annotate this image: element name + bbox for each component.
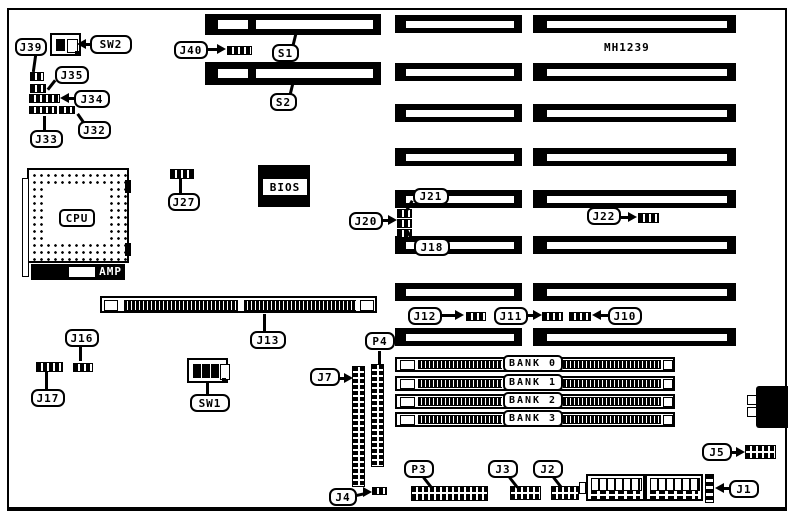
callout-tail [79, 347, 82, 361]
cache-slot-j13 [100, 296, 377, 313]
amp-brand-text: AMP [99, 265, 122, 278]
callout-j7: J7 [310, 368, 340, 386]
expansion-slot [395, 148, 522, 166]
callout-arrowhead [628, 212, 637, 222]
cpu-amp-bar: AMP [31, 264, 125, 280]
expansion-slot [395, 104, 522, 122]
header-p4 [371, 364, 384, 467]
callout-j3: J3 [488, 460, 518, 478]
callout-j2: J2 [533, 460, 563, 478]
simm-contacts [563, 415, 661, 424]
header-j2 [551, 486, 579, 500]
keyboard-connector-tab [747, 407, 757, 417]
amp-bar-window [69, 267, 95, 277]
callout-j21: J21 [413, 188, 449, 205]
callout-j17: J17 [31, 389, 65, 407]
keyboard-connector-tab [747, 395, 757, 405]
bios-chip: BIOS [258, 165, 310, 207]
jumper-j16 [73, 363, 93, 372]
slot-s1-key [218, 20, 248, 29]
slot-latch [360, 300, 374, 311]
callout-arrowhead [77, 39, 86, 49]
simm-contacts [563, 397, 661, 406]
slot-s2 [205, 62, 381, 85]
simm-latch [663, 397, 673, 407]
header-j5 [745, 445, 776, 459]
callout-arrowhead [592, 310, 601, 320]
expansion-slot [395, 63, 522, 81]
slot-s1-stripe [256, 20, 373, 29]
motherboard-diagram: MH1239 CPU AMP BIOS [0, 0, 791, 521]
header-j1 [705, 474, 714, 503]
callout-sw2: SW2 [90, 35, 132, 54]
callout-tail [263, 314, 266, 332]
simm-latch [400, 397, 415, 407]
callout-j22: J22 [587, 207, 621, 225]
callout-p4: P4 [365, 332, 395, 350]
power-pins [591, 478, 642, 491]
slot-latch [104, 300, 118, 311]
jumper-j21 [397, 209, 412, 218]
callout-j40: J40 [174, 41, 208, 59]
simm-latch [400, 360, 415, 370]
bank0-label: BANK 0 [503, 355, 563, 372]
power-connector-p2 [645, 474, 703, 501]
dip-position-on [56, 39, 65, 51]
callout-j27: J27 [168, 193, 200, 211]
power-contacts [591, 491, 640, 494]
dip-switch-sw1 [187, 358, 228, 383]
expansion-slot [395, 328, 522, 346]
jumper-j27 [170, 169, 194, 179]
callout-arrowhead [533, 310, 542, 320]
jumper-j33 [29, 106, 57, 114]
callout-j39: J39 [15, 38, 47, 56]
part-number-text: MH1239 [604, 41, 650, 54]
callout-j4: J4 [329, 488, 357, 506]
callout-arrowhead [715, 483, 724, 493]
expansion-slot [533, 63, 736, 81]
simm-latch [400, 415, 415, 425]
simm-contacts [418, 397, 502, 406]
callout-tail [43, 116, 46, 130]
slot-s1 [205, 14, 381, 35]
jumper-j20 [397, 219, 412, 228]
power-contacts [650, 496, 698, 499]
cpu-label: CPU [59, 209, 95, 227]
power-connector-p1 [586, 474, 645, 501]
expansion-slot [395, 15, 522, 33]
bank2-label: BANK 2 [503, 392, 563, 409]
callout-j10: J10 [608, 307, 642, 325]
jumper-j34 [29, 94, 60, 103]
jumper-j39 [30, 72, 44, 81]
callout-tail [45, 372, 48, 389]
jumper-j35 [30, 84, 46, 93]
cpu-socket-tab [125, 180, 131, 193]
power-connector-tab [579, 482, 586, 494]
callout-s1: S1 [272, 44, 299, 62]
callout-sw1: SW1 [190, 394, 230, 412]
callout-j33: J33 [30, 130, 63, 148]
jumper-j40 [227, 46, 252, 55]
expansion-slot [533, 328, 736, 346]
dip-position-on [202, 364, 210, 378]
expansion-slot [533, 283, 736, 301]
jumper-j17 [36, 362, 63, 372]
slot-contacts [124, 300, 238, 311]
simm-contacts [418, 415, 502, 424]
callout-j34: J34 [74, 90, 110, 108]
callout-j32: J32 [78, 121, 111, 139]
simm-contacts [563, 360, 661, 369]
jumper-j4 [372, 487, 387, 495]
jumper-j12 [466, 312, 486, 321]
callout-s2: S2 [270, 93, 297, 111]
callout-tail [206, 383, 209, 394]
slot-s2-stripe [256, 69, 373, 78]
simm-latch [663, 379, 673, 389]
dip-position-on [193, 364, 201, 378]
slot-contacts [244, 300, 356, 311]
expansion-slot [533, 236, 736, 254]
expansion-slot [533, 15, 736, 33]
cpu-retention-bar [22, 178, 29, 277]
jumper-j22 [638, 213, 659, 223]
callout-j13: J13 [250, 331, 286, 349]
power-contacts [650, 491, 698, 494]
bank1-label: BANK 1 [503, 374, 563, 391]
keyboard-connector [756, 386, 788, 428]
callout-j35: J35 [55, 66, 89, 84]
expansion-slot [395, 283, 522, 301]
slot-s2-key [218, 69, 248, 78]
callout-arrowhead [217, 44, 226, 54]
power-pins [650, 478, 700, 491]
callout-arrowhead [363, 487, 372, 497]
callout-tail [179, 179, 182, 194]
dip-dot [75, 51, 79, 55]
bios-label: BIOS [262, 178, 308, 196]
callout-arrowhead [60, 93, 69, 103]
callout-j11: J11 [494, 307, 528, 325]
simm-contacts [418, 360, 502, 369]
callout-j1: J1 [729, 480, 759, 498]
callout-j18: J18 [414, 238, 450, 256]
callout-j12: J12 [408, 307, 442, 325]
callout-p3: P3 [404, 460, 434, 478]
cpu-socket-tab [125, 243, 131, 256]
expansion-slot [533, 190, 736, 208]
power-contacts [591, 496, 640, 499]
callout-j5: J5 [702, 443, 732, 461]
bank3-label: BANK 3 [503, 410, 563, 427]
callout-j16: J16 [65, 329, 99, 347]
callout-tail [378, 351, 381, 364]
simm-latch [663, 415, 673, 425]
header-j3 [510, 486, 541, 500]
simm-contacts [563, 379, 661, 388]
callout-j20: J20 [349, 212, 383, 230]
dip-position-on [211, 364, 219, 378]
jumper-j32 [59, 106, 75, 114]
jumper-j10 [569, 312, 591, 321]
simm-contacts [418, 379, 502, 388]
callout-arrowhead [388, 215, 397, 225]
header-p3 [411, 486, 488, 501]
dip-dot [222, 378, 226, 382]
simm-latch [400, 379, 415, 389]
expansion-slot [533, 148, 736, 166]
jumper-j11 [542, 312, 563, 321]
callout-arrowhead [344, 373, 353, 383]
callout-arrowhead [736, 447, 745, 457]
callout-arrowhead [455, 310, 464, 320]
expansion-slot [533, 104, 736, 122]
simm-latch [663, 360, 673, 370]
header-j7 [352, 366, 365, 487]
